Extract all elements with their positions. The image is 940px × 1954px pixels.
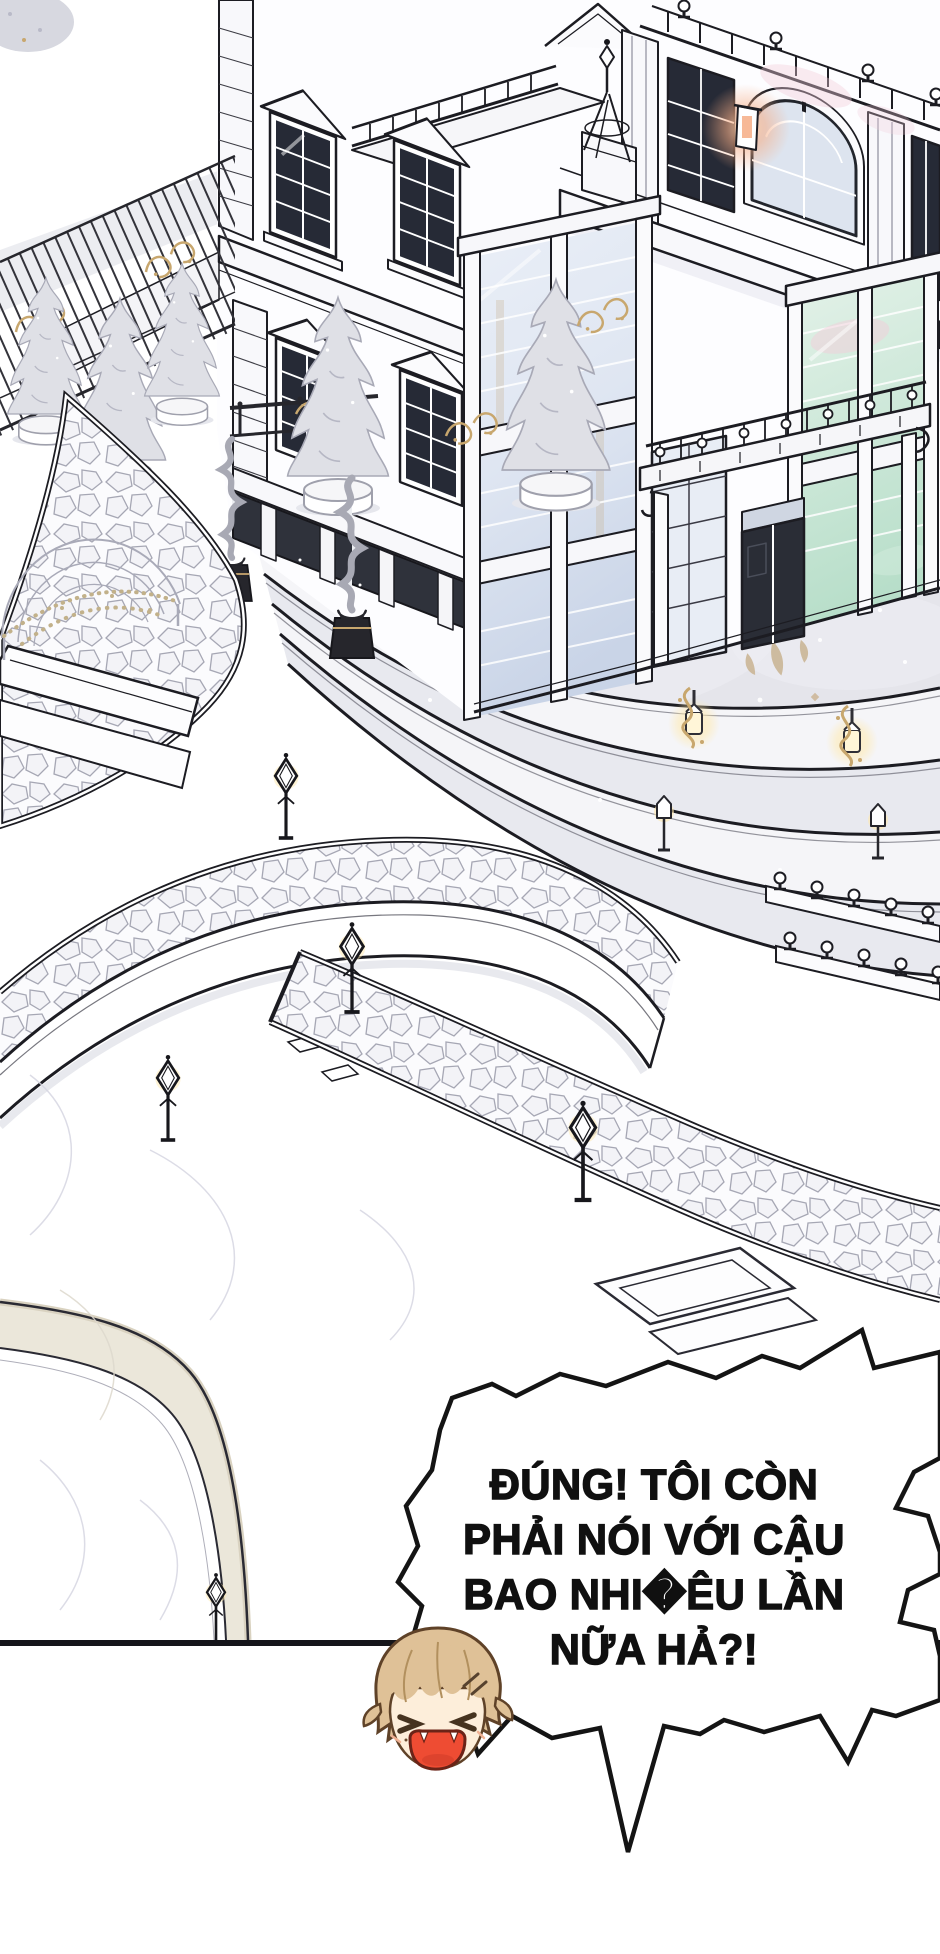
open-mouth: [410, 1731, 465, 1769]
speech-line-3: BAO NHI�ÊU LẦN: [431, 1568, 877, 1623]
comic-panel: ĐÚNG! TÔI CÒN PHẢI NÓI VỚI CẬU BAO NHI�Ê…: [0, 0, 940, 1954]
speech-line-2: PHẢI NÓI VỚI CẬU: [431, 1513, 877, 1568]
speech-line-1: ĐÚNG! TÔI CÒN: [431, 1458, 877, 1513]
chibi-angry-boy: [352, 1620, 524, 1798]
roof-lamp-glow: [702, 84, 790, 172]
